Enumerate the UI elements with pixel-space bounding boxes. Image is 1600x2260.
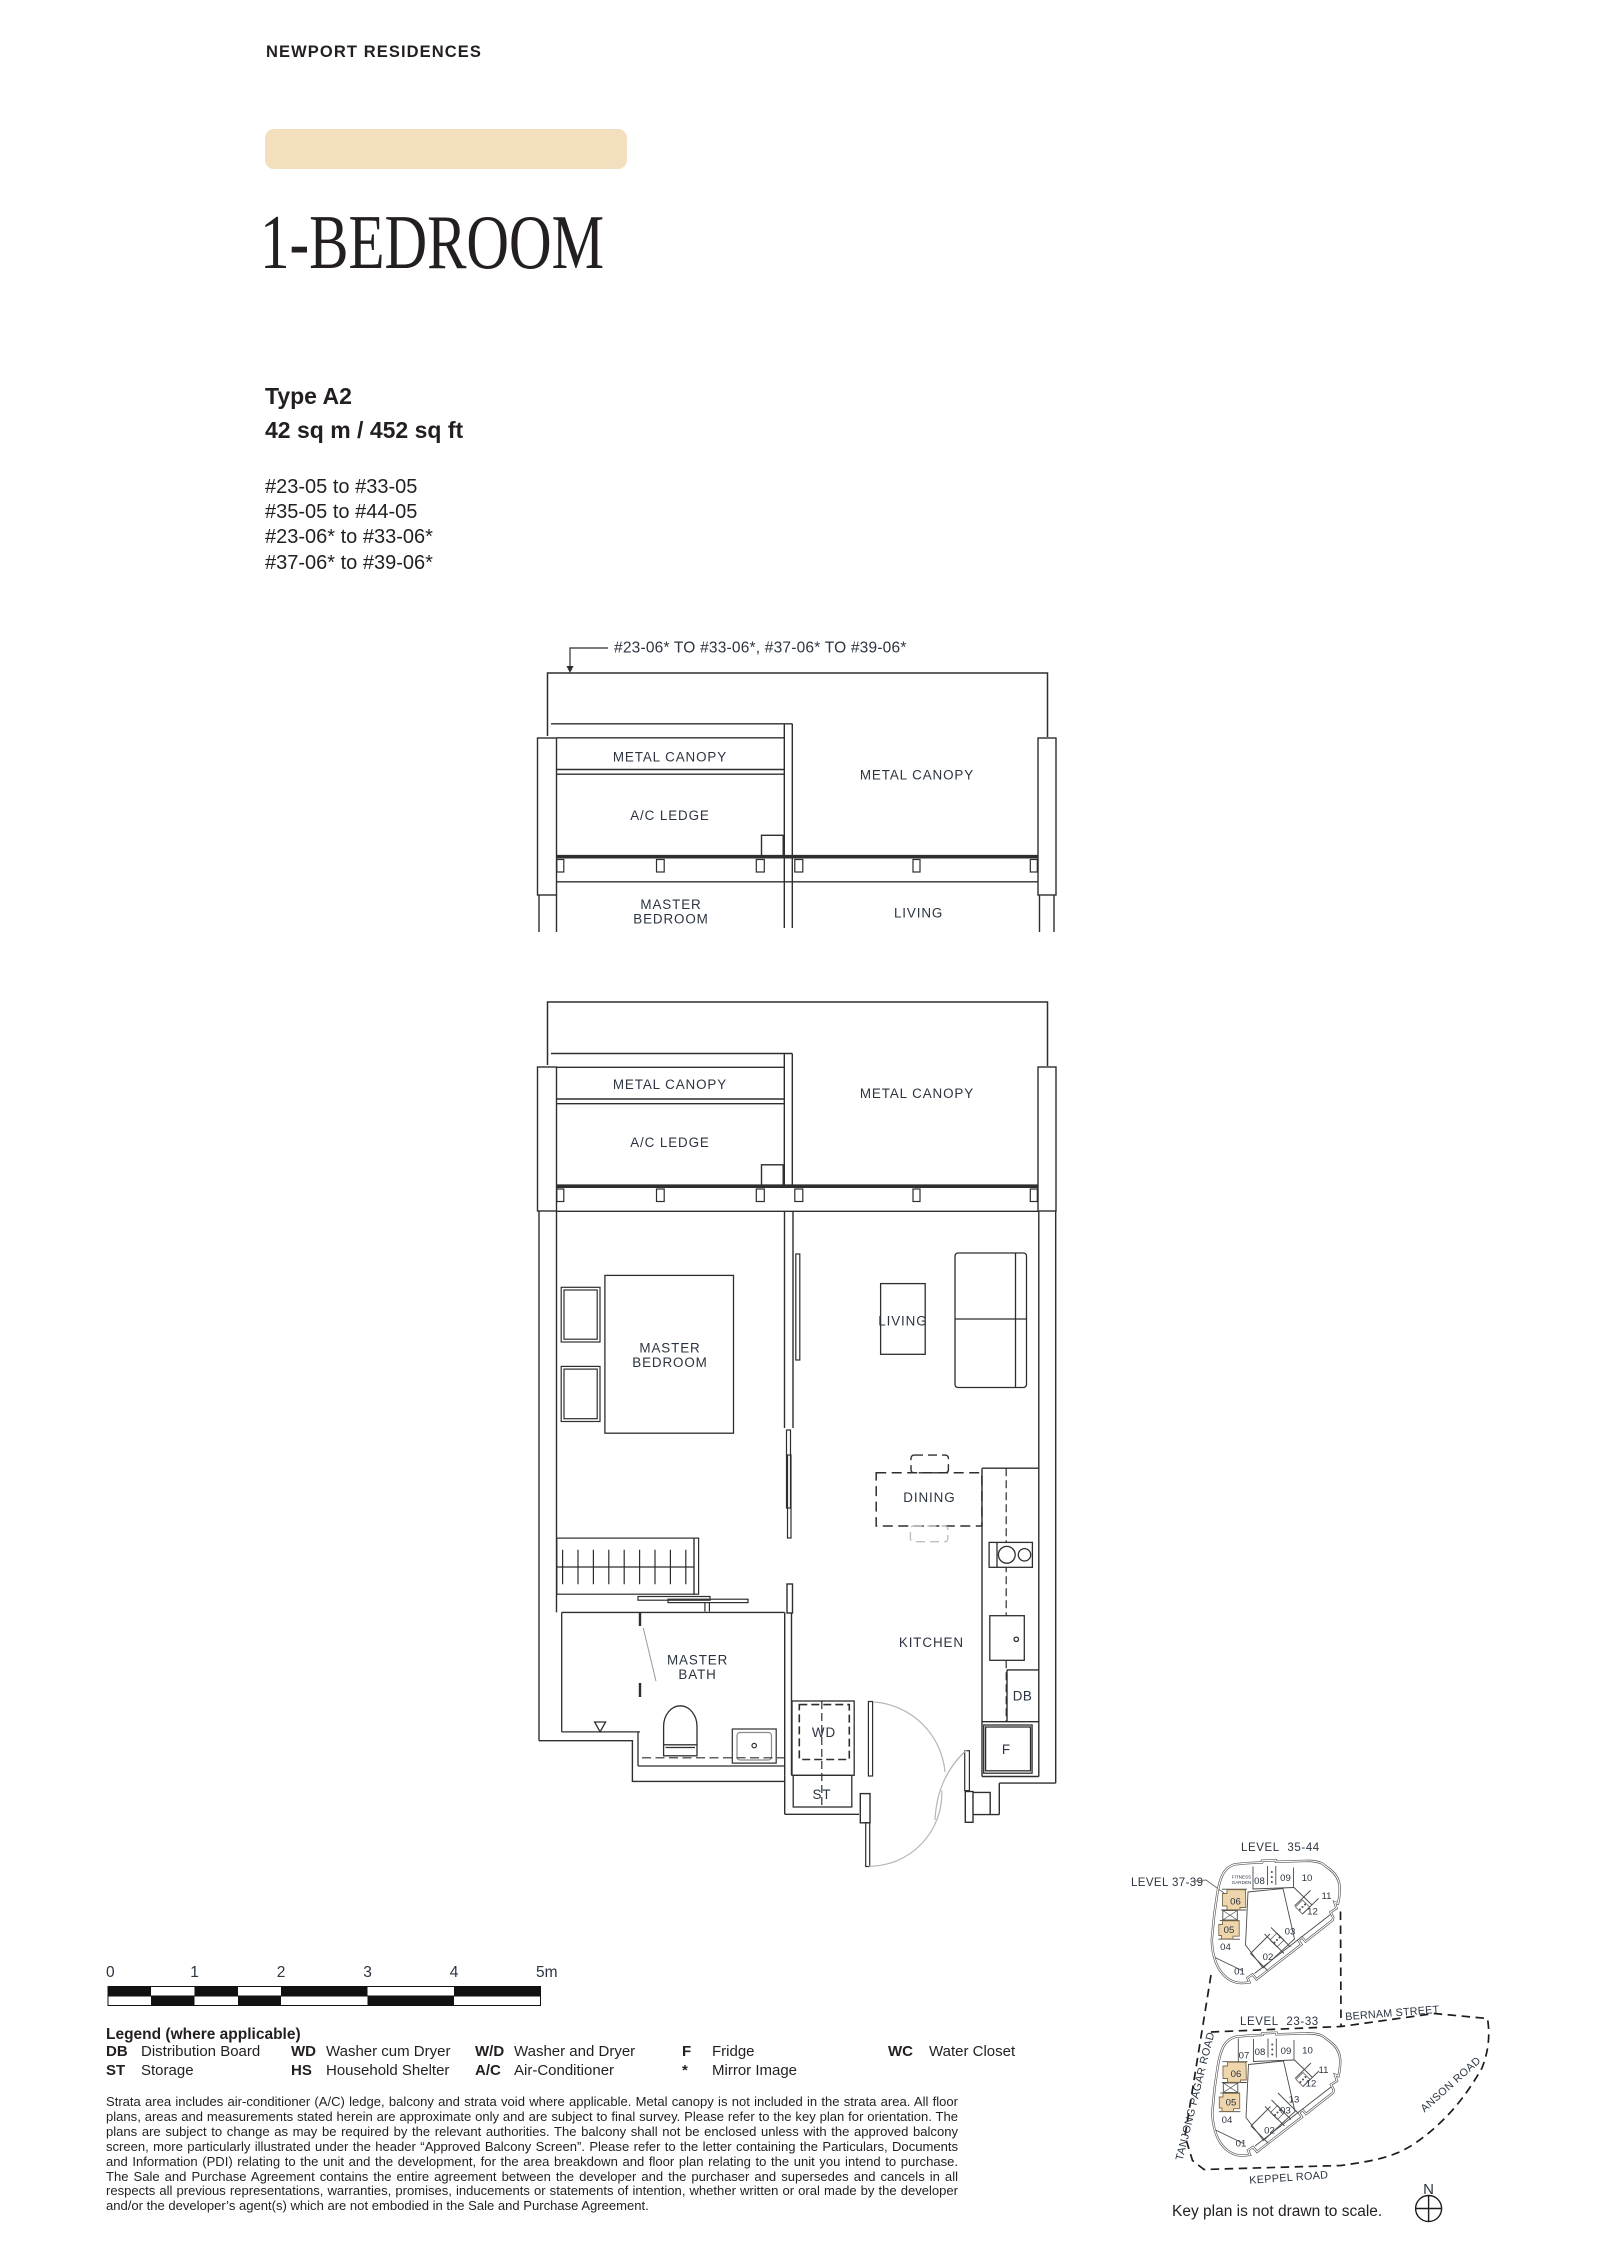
svg-text:11: 11 [1319,2065,1329,2076]
svg-text:08: 08 [1255,2047,1266,2058]
svg-text:LIVING: LIVING [894,906,943,921]
svg-text:BEDROOM: BEDROOM [632,1355,708,1370]
svg-text:ST: ST [812,1787,831,1802]
svg-text:07: 07 [1239,2051,1250,2062]
svg-text:01: 01 [1234,1967,1245,1978]
svg-text:02: 02 [1263,1952,1274,1963]
svg-text:BERNAM STREET: BERNAM STREET [1345,2004,1440,2023]
svg-text:DINING: DINING [903,1490,955,1505]
svg-text:06: 06 [1231,2069,1242,2080]
svg-text:05: 05 [1224,1925,1235,1936]
svg-text:FITNESS: FITNESS [1232,1875,1251,1880]
svg-text:1: 1 [190,1964,199,1981]
svg-text:12: 12 [1306,2079,1317,2090]
svg-text:4: 4 [450,1964,459,1981]
svg-text:A/C LEDGE: A/C LEDGE [630,1135,710,1150]
svg-text:WD: WD [812,1725,836,1740]
svg-text:10: 10 [1302,2046,1313,2057]
svg-text:METAL CANOPY: METAL CANOPY [613,750,727,765]
svg-text:F: F [1002,1742,1010,1757]
svg-text:LEVEL 23-33: LEVEL 23-33 [1240,2016,1319,2028]
svg-text:5m: 5m [536,1964,558,1981]
svg-text:03: 03 [1280,2106,1291,2117]
svg-text:MASTER: MASTER [667,1653,728,1668]
svg-text:METAL CANOPY: METAL CANOPY [860,768,974,783]
svg-text:METAL CANOPY: METAL CANOPY [613,1077,727,1092]
svg-text:BATH: BATH [678,1667,716,1682]
svg-text:02: 02 [1264,2126,1275,2137]
svg-text:TANJONG PAGAR ROAD: TANJONG PAGAR ROAD [1174,2031,1218,2162]
svg-text:KITCHEN: KITCHEN [899,1635,964,1650]
svg-text:LEVEL 37-39: LEVEL 37-39 [1131,1877,1203,1889]
svg-text:11: 11 [1322,1891,1332,1902]
svg-text:A/C LEDGE: A/C LEDGE [630,808,710,823]
svg-text:MASTER: MASTER [639,1341,700,1356]
svg-text:09: 09 [1281,2046,1292,2057]
svg-text:GARDEN: GARDEN [1232,1880,1252,1885]
svg-text:10: 10 [1302,1873,1313,1884]
svg-text:05: 05 [1226,2098,1237,2109]
svg-text:01: 01 [1236,2139,1247,2150]
svg-text:BEDROOM: BEDROOM [633,912,709,927]
svg-text:#23-06* TO #33-06*, #37-06* TO: #23-06* TO #33-06*, #37-06* TO #39-06* [614,640,907,657]
svg-text:KEPPEL ROAD: KEPPEL ROAD [1249,2169,1329,2186]
svg-text:09: 09 [1280,1873,1291,1884]
svg-text:MASTER: MASTER [640,897,701,912]
svg-text:13: 13 [1289,2095,1300,2106]
svg-text:LEVEL 35-44: LEVEL 35-44 [1241,1842,1320,1854]
svg-text:METAL CANOPY: METAL CANOPY [860,1086,974,1101]
svg-text:12: 12 [1307,1907,1318,1918]
svg-text:DB: DB [1013,1689,1033,1704]
svg-text:04: 04 [1222,2115,1233,2126]
svg-text:0: 0 [106,1964,115,1981]
svg-text:03: 03 [1285,1927,1296,1938]
svg-text:ANSON ROAD: ANSON ROAD [1419,2055,1484,2115]
svg-text:06: 06 [1230,1897,1241,1908]
svg-text:08: 08 [1254,1876,1265,1887]
svg-text:LIVING: LIVING [878,1314,927,1329]
svg-text:04: 04 [1220,1942,1231,1953]
svg-text:3: 3 [363,1964,372,1981]
svg-text:2: 2 [277,1964,286,1981]
